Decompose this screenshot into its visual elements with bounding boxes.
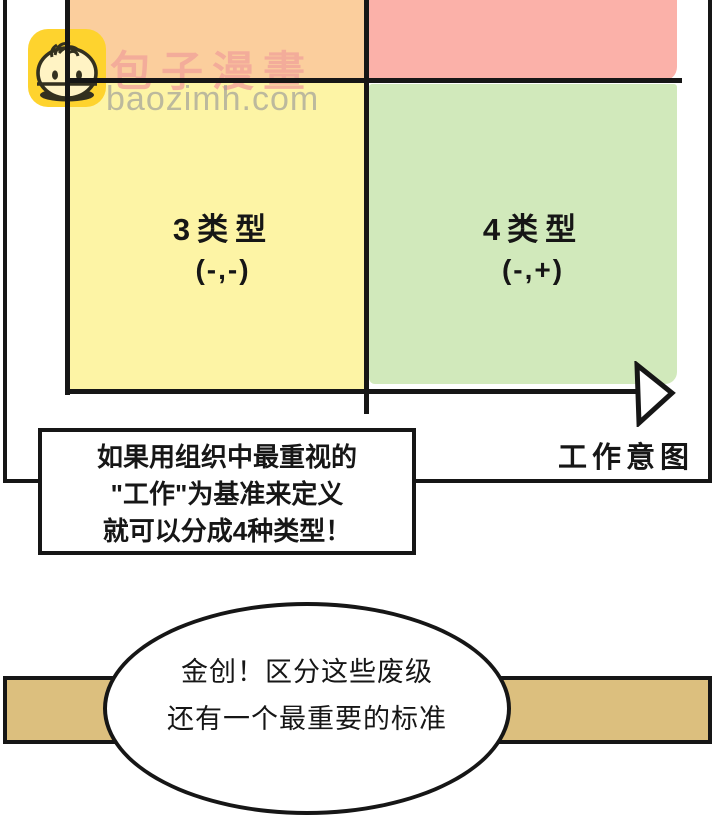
speech-bubble-line-1: 金创！区分这些废级 — [107, 650, 507, 689]
speech-bubble: 金创！区分这些废级 还有一个最重要的标准 — [103, 602, 511, 815]
x-axis-label: 工作意图 — [558, 434, 694, 476]
x-axis-line — [65, 389, 640, 394]
y-axis-line — [65, 0, 70, 395]
speech-bubble-line-2: 还有一个最重要的标准 — [107, 697, 507, 736]
quadrant-3-label: 3类型 (-,-) — [118, 204, 328, 286]
horizontal-divider-line — [65, 78, 682, 83]
x-axis-arrowhead-icon — [632, 361, 678, 427]
watermark-domain: baozimh.com — [106, 80, 319, 119]
quadrant-3-sign: (-,-) — [118, 254, 328, 286]
quadrant-4-title: 4类型 — [428, 204, 638, 249]
vertical-divider-line — [364, 0, 369, 414]
caption-line-2: "工作"为基准来定义 — [42, 476, 412, 513]
caption-box: 如果用组织中最重视的 "工作"为基准来定义 就可以分成4种类型！ — [38, 428, 416, 555]
quadrant-4-label: 4类型 (-,+) — [428, 204, 638, 286]
caption-line-3: 就可以分成4种类型！ — [42, 513, 412, 550]
quadrant-top-right — [369, 0, 677, 81]
comic-page: 包子漫畫 baozimh.com 3类型 (-,-) 4类型 (-,+) 工作意… — [0, 0, 720, 700]
caption-line-1: 如果用组织中最重视的 — [42, 439, 412, 476]
quadrant-3-title: 3类型 — [118, 204, 328, 249]
quadrant-4-sign: (-,+) — [428, 254, 638, 286]
